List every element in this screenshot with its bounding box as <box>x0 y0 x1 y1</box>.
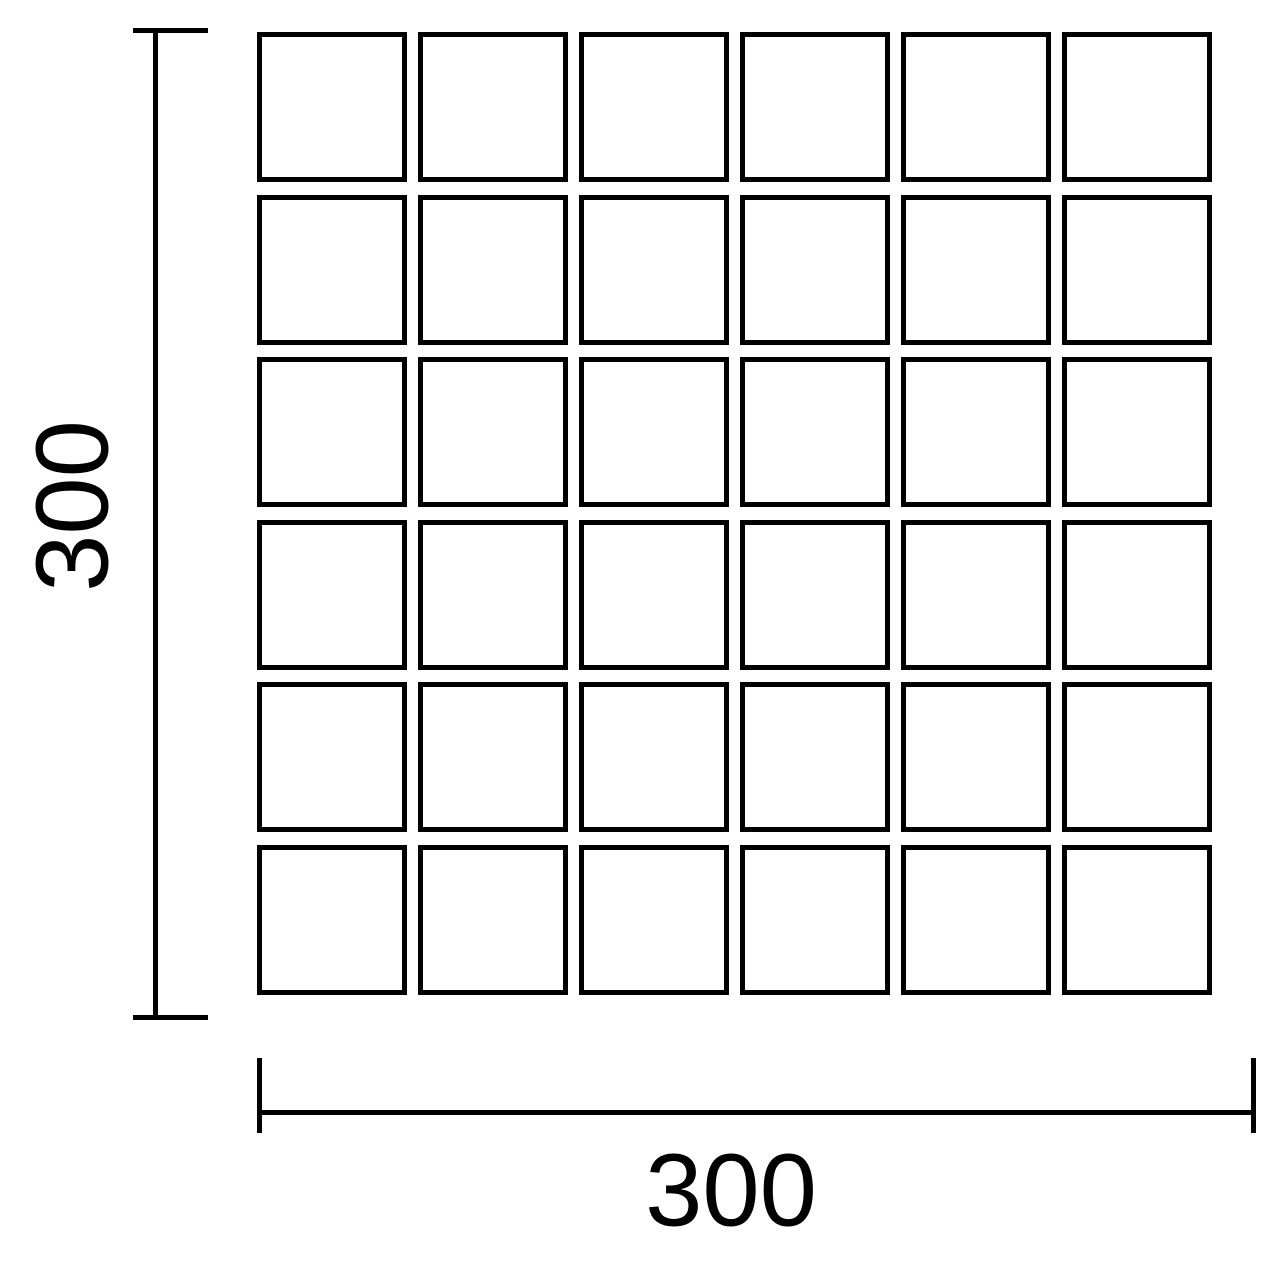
tile-square <box>418 32 568 182</box>
width-dimension-tick-left <box>257 1058 262 1133</box>
tile-square <box>579 845 729 995</box>
tile-square <box>1062 357 1212 507</box>
tile-square <box>740 32 890 182</box>
tile-square <box>901 195 1051 345</box>
tile-square <box>579 195 729 345</box>
tile-square <box>257 357 407 507</box>
tile-square <box>257 195 407 345</box>
tile-square <box>740 682 890 832</box>
tile-square <box>257 845 407 995</box>
width-dimension-label: 300 <box>645 1139 817 1242</box>
tile-square <box>418 682 568 832</box>
tile-square <box>579 32 729 182</box>
tile-square <box>418 195 568 345</box>
tile-square <box>418 357 568 507</box>
tile-square <box>901 520 1051 670</box>
tile-square <box>579 357 729 507</box>
tile-square <box>740 845 890 995</box>
tile-square <box>257 682 407 832</box>
tile-square <box>1062 845 1212 995</box>
width-dimension-tick-right <box>1251 1058 1256 1133</box>
tile-square <box>1062 195 1212 345</box>
tile-square <box>740 520 890 670</box>
tile-square <box>740 357 890 507</box>
tile-square <box>901 845 1051 995</box>
tile-square <box>740 195 890 345</box>
tile-square <box>257 32 407 182</box>
height-dimension-tick-bottom <box>133 1015 208 1020</box>
tile-square <box>579 682 729 832</box>
tile-sheet-dimension-diagram: 300 300 <box>0 0 1280 1280</box>
height-dimension-tick-top <box>133 28 208 33</box>
tile-grid <box>257 32 1212 995</box>
tile-square <box>257 520 407 670</box>
tile-square <box>901 682 1051 832</box>
tile-square <box>1062 520 1212 670</box>
tile-square <box>1062 32 1212 182</box>
tile-square <box>1062 682 1212 832</box>
height-dimension-line <box>153 28 158 1020</box>
tile-square <box>418 845 568 995</box>
width-dimension-line <box>257 1110 1256 1115</box>
tile-square <box>418 520 568 670</box>
tile-square <box>901 32 1051 182</box>
tile-square <box>901 357 1051 507</box>
height-dimension-label: 300 <box>21 420 124 592</box>
tile-square <box>579 520 729 670</box>
